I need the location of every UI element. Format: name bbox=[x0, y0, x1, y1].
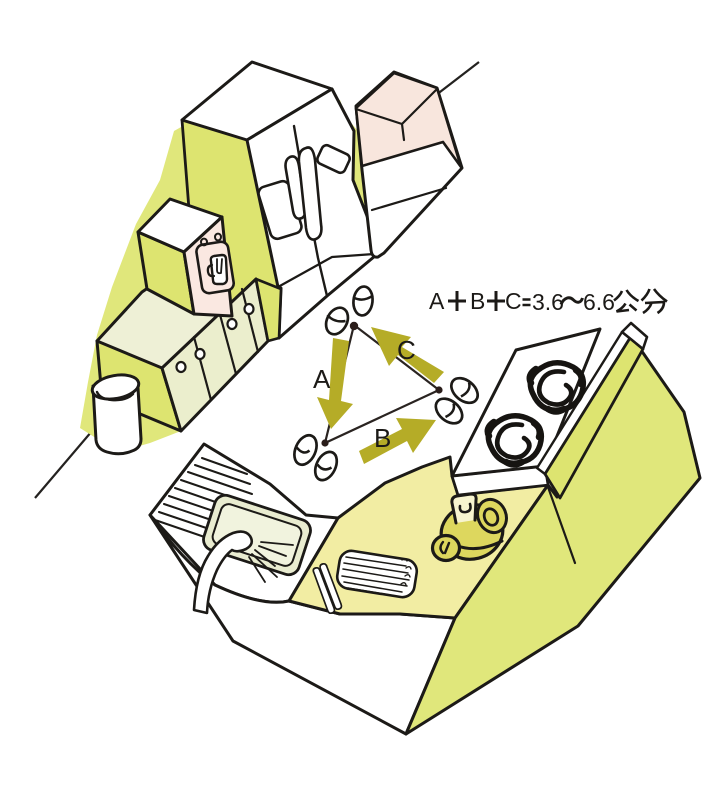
svg-text:B: B bbox=[470, 288, 485, 314]
svg-text:C: C bbox=[397, 335, 416, 365]
svg-text:A: A bbox=[313, 364, 331, 394]
svg-text:B: B bbox=[374, 423, 391, 453]
svg-text:6.6: 6.6 bbox=[583, 289, 615, 315]
svg-text:3.6: 3.6 bbox=[532, 289, 564, 315]
svg-text:C: C bbox=[505, 288, 522, 314]
svg-text:A: A bbox=[429, 288, 445, 314]
